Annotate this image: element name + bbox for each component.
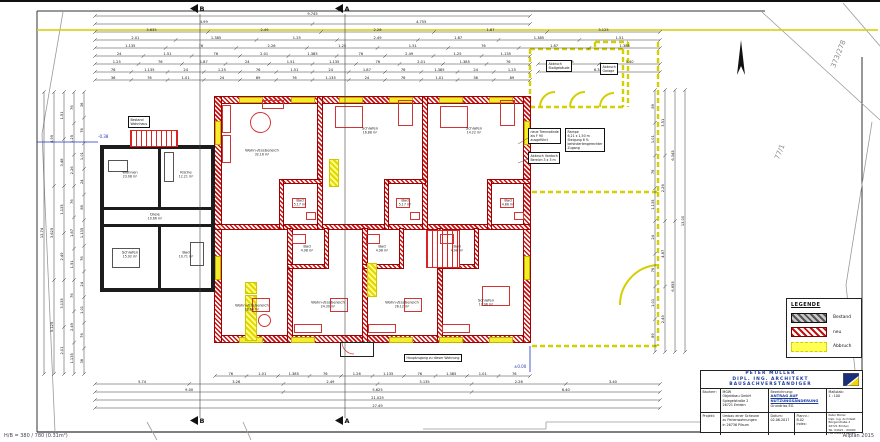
architect-logo-icon: [840, 373, 862, 386]
window-demolition-mark: [490, 338, 512, 342]
annotation-note: Rampe6,21 x 1,50 mSteigung 6 %behinderte…: [565, 128, 605, 152]
furniture-symbol: [442, 324, 470, 333]
bauherr-label-cell: Bauherr:: [701, 389, 721, 412]
room-label: Küche12.21 m²: [179, 170, 194, 179]
section-arrow-icon: [190, 4, 198, 13]
furniture-symbol: [222, 105, 231, 133]
furniture-symbol: [410, 212, 420, 220]
legend-label-neu: neu: [833, 330, 841, 335]
legend-label-abbruch: Abbruch: [833, 344, 851, 349]
wall-new: [288, 229, 292, 342]
massstab-cell: Maßstab: 1 : 100: [827, 389, 862, 412]
wall-new: [385, 180, 388, 229]
projekt-label-cell: Projekt:: [701, 413, 721, 435]
furniture-symbol: [440, 234, 454, 244]
furniture-symbol: [292, 234, 306, 244]
wall-new: [488, 180, 491, 229]
annotation-note: neue Trennwändeals F 90ausgeführt: [528, 128, 561, 144]
window-demolition-mark: [440, 98, 462, 102]
bauherr-value-cell: MGWObjektbau GmbHSpiegelstraße 226721 Em…: [721, 389, 769, 412]
wall-new: [363, 229, 367, 342]
room-label: Bad4.86 m²: [502, 198, 515, 207]
wall-existing: [100, 207, 215, 210]
wall-new: [280, 180, 283, 229]
room-label: Wohnen23.08 m²: [122, 170, 137, 179]
window-demolition-mark: [440, 338, 462, 342]
annotation-note: AbbruchGarage: [600, 63, 618, 75]
wall-new: [385, 180, 425, 183]
legend-swatch-neu: [791, 327, 827, 337]
furniture-symbol: [258, 314, 271, 327]
level-mark-label: ±0.00: [514, 364, 526, 369]
level-mark-label: -0.38: [98, 134, 108, 139]
room-label: Schlafen15.92 m²: [122, 250, 138, 259]
furniture-symbol: [262, 100, 284, 109]
plan-subtitle: Grundriss EG: [771, 404, 825, 408]
wall-new: [325, 229, 328, 268]
section-marker-b: B: [190, 416, 204, 425]
window-demolition-mark: [292, 98, 314, 102]
bauherr-label: Bauherr:: [703, 390, 719, 394]
projekt-label: Projekt:: [703, 414, 719, 418]
title-block-row-1: Bauherr: MGWObjektbau GmbHSpiegelstraße …: [701, 389, 862, 413]
demolition-strip: [330, 160, 338, 186]
wall-existing: [211, 145, 215, 292]
entrance-porch: [340, 342, 374, 357]
window-demolition-mark: [292, 338, 314, 342]
projekt-value: Umbau einer Scheunezu Ferienwohnungenin …: [723, 414, 767, 427]
projekt-value-cell: Umbau einer Scheunezu Ferienwohnungenin …: [721, 413, 769, 435]
window-demolition-mark: [340, 98, 362, 102]
furniture-symbol: [294, 324, 322, 333]
room-label: Wohn-/Essbereich26.12 m²: [385, 300, 419, 309]
demolition-strip: [368, 264, 376, 296]
architect-address: Peter MüllerDipl. Ing. ArchitektBürgerst…: [829, 414, 861, 435]
room-label: Bad4.98 m²: [451, 244, 464, 253]
demolition-strip: [246, 283, 256, 293]
room-label: Schlafen12.96 m²: [478, 298, 494, 307]
furniture-symbol: [514, 212, 524, 220]
furniture-symbol: [164, 152, 174, 182]
wall-new: [288, 265, 328, 268]
section-letter: B: [200, 5, 205, 13]
massstab-value: 1 : 100: [829, 394, 861, 398]
title-block-row-2: Projekt: Umbau einer Scheunezu Ferienwoh…: [701, 413, 862, 435]
legend-swatch-bestand: [791, 313, 827, 323]
wall-existing: [158, 227, 161, 291]
room-label: Diele10.66 m²: [148, 212, 163, 221]
section-letter: A: [345, 417, 350, 425]
section-marker-a: A: [335, 4, 350, 13]
room-label: Bad5.17 m²: [294, 198, 307, 207]
annotation-note: Hauptzugang zu dieser Wohnung: [404, 354, 462, 362]
architect-name: PETER MÜLLERDIPL. ING. ARCHITEKTBAUSACHV…: [701, 371, 840, 388]
annotation-note: Abbruch VordachBereich 3 x 3 m: [528, 152, 560, 164]
room-label: Bad5.17 m²: [399, 198, 412, 207]
legend-title: LEGENDE: [791, 302, 857, 308]
architect-address-cell: Peter MüllerDipl. Ing. ArchitektBürgerst…: [827, 413, 862, 435]
furniture-symbol: [440, 106, 468, 128]
cad-app-text: Allplan 2015: [843, 433, 874, 439]
room-label: Schlafen14.22 m²: [466, 126, 482, 135]
stair: [130, 130, 178, 147]
wall-existing: [158, 145, 161, 210]
annotation-note: AbbruchStallgebäude: [546, 60, 572, 72]
datum-cell: Datum: 02.06.2017: [769, 413, 795, 435]
wall-new: [318, 97, 322, 229]
furniture-symbol: [222, 135, 231, 163]
antrag-title: ANTRAG AUFNUTZUNGSÄNDERUNG: [771, 394, 825, 403]
wall-new: [215, 225, 530, 229]
furniture-symbol: [306, 212, 316, 220]
window-demolition-mark: [390, 338, 412, 342]
section-arrow-icon: [335, 4, 343, 13]
section-letter: B: [200, 417, 205, 425]
annotation-note: BestandWohnhaus: [128, 116, 150, 128]
room-label: Bad4.98 m²: [376, 244, 389, 253]
bauherr-value: MGWObjektbau GmbHSpiegelstraße 226721 Em…: [723, 390, 767, 407]
section-letter: A: [345, 5, 350, 13]
floor-plan-sheet: 9.7454.994.7553.6352.492.261.873.1252.01…: [0, 0, 880, 442]
section-marker-a: A: [335, 416, 350, 425]
room-label: Bad4.98 m²: [301, 244, 314, 253]
section-arrow-icon: [335, 416, 343, 425]
index-label: Index:: [797, 422, 825, 426]
legend-item-bestand: Bestand: [791, 313, 857, 323]
legend-item-neu: neu: [791, 327, 857, 337]
legend-item-abbruch: Abbruch: [791, 342, 857, 352]
title-block-header: PETER MÜLLERDIPL. ING. ARCHITEKTBAUSACHV…: [701, 371, 862, 389]
furniture-symbol: [335, 106, 363, 128]
bezeichnung-cell: Bezeichnung: ANTRAG AUFNUTZUNGSÄNDERUNG …: [769, 389, 827, 412]
wall-new: [423, 97, 427, 229]
room-label: Bad10.71 m²: [179, 250, 194, 259]
window-demolition-mark: [216, 122, 220, 144]
furniture-symbol: [366, 234, 380, 244]
section-marker-b: B: [190, 4, 204, 13]
window-demolition-mark: [240, 98, 262, 102]
legend-box: LEGENDE Bestand neu Abbruch: [786, 298, 862, 358]
legend-label-bestand: Bestand: [833, 315, 851, 320]
room-label: Wohn-/Essbereich28.64 m²: [235, 303, 269, 312]
wall-new: [488, 180, 530, 183]
parcel-number-label: 77/1: [773, 143, 786, 161]
window-demolition-mark: [216, 257, 220, 279]
plannr-cell: Plannr.: B.02 Index:: [795, 413, 827, 435]
title-block: PETER MÜLLERDIPL. ING. ARCHITEKTBAUSACHV…: [700, 370, 863, 433]
furniture-symbol: [250, 112, 271, 133]
datum-value: 02.06.2017: [771, 418, 793, 422]
wall-existing: [100, 145, 104, 292]
furniture-symbol: [368, 324, 396, 333]
legend-swatch-abbruch: [791, 342, 827, 352]
parcel-number-label: 373/278: [829, 39, 847, 69]
wall-new: [280, 180, 322, 183]
room-label: Wohn-/Essbereich24.30 m²: [311, 300, 345, 309]
sheet-size-text: H/B = 380 / 780 (0.31m²): [4, 433, 68, 439]
window-demolition-mark: [525, 257, 529, 279]
room-label: Schlafen16.88 m²: [362, 126, 378, 135]
section-arrow-icon: [190, 416, 198, 425]
wall-new: [475, 229, 478, 268]
furniture-symbol: [500, 100, 515, 126]
wall-new: [400, 229, 403, 268]
furniture-symbol: [398, 100, 413, 126]
room-label: Wohn-/Essbereich32.16 m²: [245, 148, 279, 157]
